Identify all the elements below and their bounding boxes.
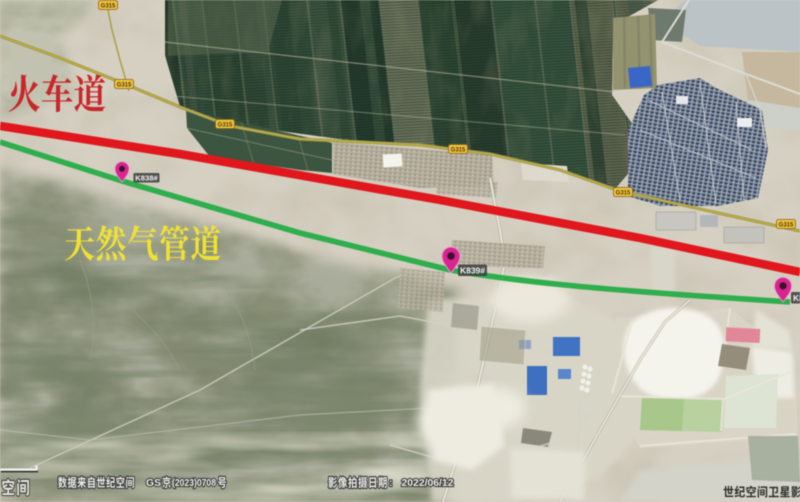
svg-text:G315: G315 — [451, 148, 466, 154]
svg-text:K838#: K838# — [135, 174, 158, 183]
svg-text:2022/06/12: 2022/06/12 — [402, 477, 454, 489]
svg-text:K8: K8 — [793, 293, 800, 303]
svg-text:GS: GS — [146, 477, 161, 489]
svg-text:G315: G315 — [616, 191, 631, 197]
svg-text:G315: G315 — [117, 83, 132, 89]
svg-text::: : — [389, 477, 393, 489]
svg-text:G315: G315 — [779, 223, 794, 229]
svg-text:K839#: K839# — [460, 266, 485, 276]
svg-text:G315: G315 — [101, 4, 116, 10]
svg-text:(2023)0708: (2023)0708 — [172, 477, 216, 489]
svg-text:G315: G315 — [218, 123, 233, 129]
